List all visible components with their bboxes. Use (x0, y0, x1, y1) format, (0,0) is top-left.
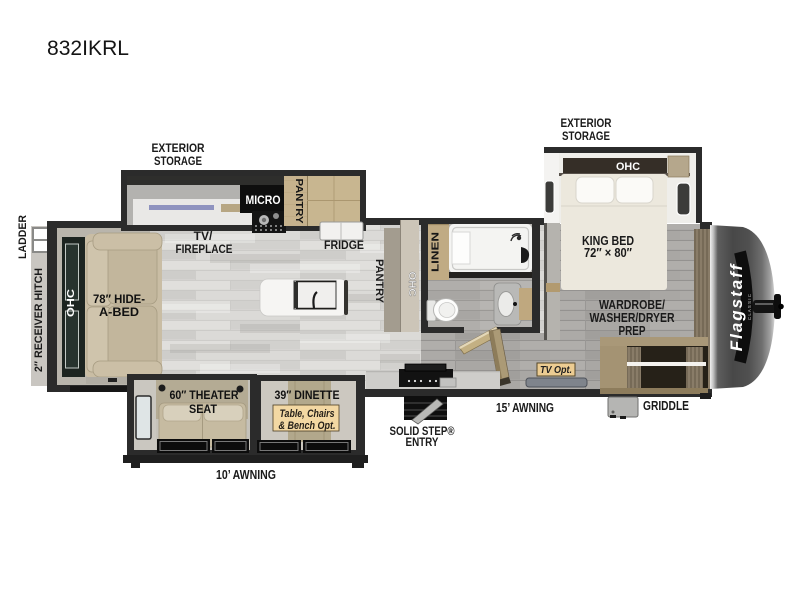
svg-text:MICRO: MICRO (246, 193, 281, 207)
svg-text:Table, Chairs: Table, Chairs (280, 408, 335, 420)
svg-text:LADDER: LADDER (17, 215, 29, 259)
svg-text:PANTRY: PANTRY (293, 179, 304, 224)
svg-text:SEAT: SEAT (189, 402, 218, 416)
svg-text:60″ THEATER: 60″ THEATER (170, 388, 239, 402)
svg-text:15’ AWNING: 15’ AWNING (496, 401, 554, 415)
svg-text:LINEN: LINEN (431, 232, 442, 272)
svg-text:STORAGE: STORAGE (562, 129, 610, 143)
svg-text:EXTERIOR: EXTERIOR (561, 116, 612, 130)
svg-text:39″ DINETTE: 39″ DINETTE (275, 388, 340, 402)
svg-text:TV Opt.: TV Opt. (540, 364, 572, 376)
svg-text:72″ × 80″: 72″ × 80″ (584, 245, 632, 260)
svg-text:C L A S S I C: C L A S S I C (747, 293, 752, 320)
svg-text:& Bench Opt.: & Bench Opt. (279, 420, 336, 432)
svg-text:FRIDGE: FRIDGE (324, 238, 364, 252)
svg-text:2″ RECEIVER HITCH: 2″ RECEIVER HITCH (33, 268, 45, 372)
svg-text:ENTRY: ENTRY (406, 435, 439, 449)
svg-text:10’ AWNING: 10’ AWNING (216, 468, 276, 482)
svg-text:Flagstaff: Flagstaff (727, 262, 746, 351)
svg-text:EXTERIOR: EXTERIOR (152, 141, 205, 155)
svg-text:832IKRL: 832IKRL (47, 36, 129, 60)
svg-text:TV/: TV/ (194, 229, 213, 243)
svg-text:FIREPLACE: FIREPLACE (176, 242, 233, 256)
svg-text:PREP: PREP (619, 323, 646, 338)
svg-text:GRIDDLE: GRIDDLE (643, 398, 689, 413)
svg-text:STORAGE: STORAGE (154, 154, 202, 168)
svg-text:OHC: OHC (616, 161, 640, 173)
svg-text:OHC: OHC (406, 272, 417, 297)
svg-text:OHC: OHC (66, 289, 77, 317)
svg-text:A-BED: A-BED (99, 307, 139, 319)
svg-text:78″ HIDE-: 78″ HIDE- (93, 294, 145, 306)
svg-text:PANTRY: PANTRY (373, 259, 385, 304)
